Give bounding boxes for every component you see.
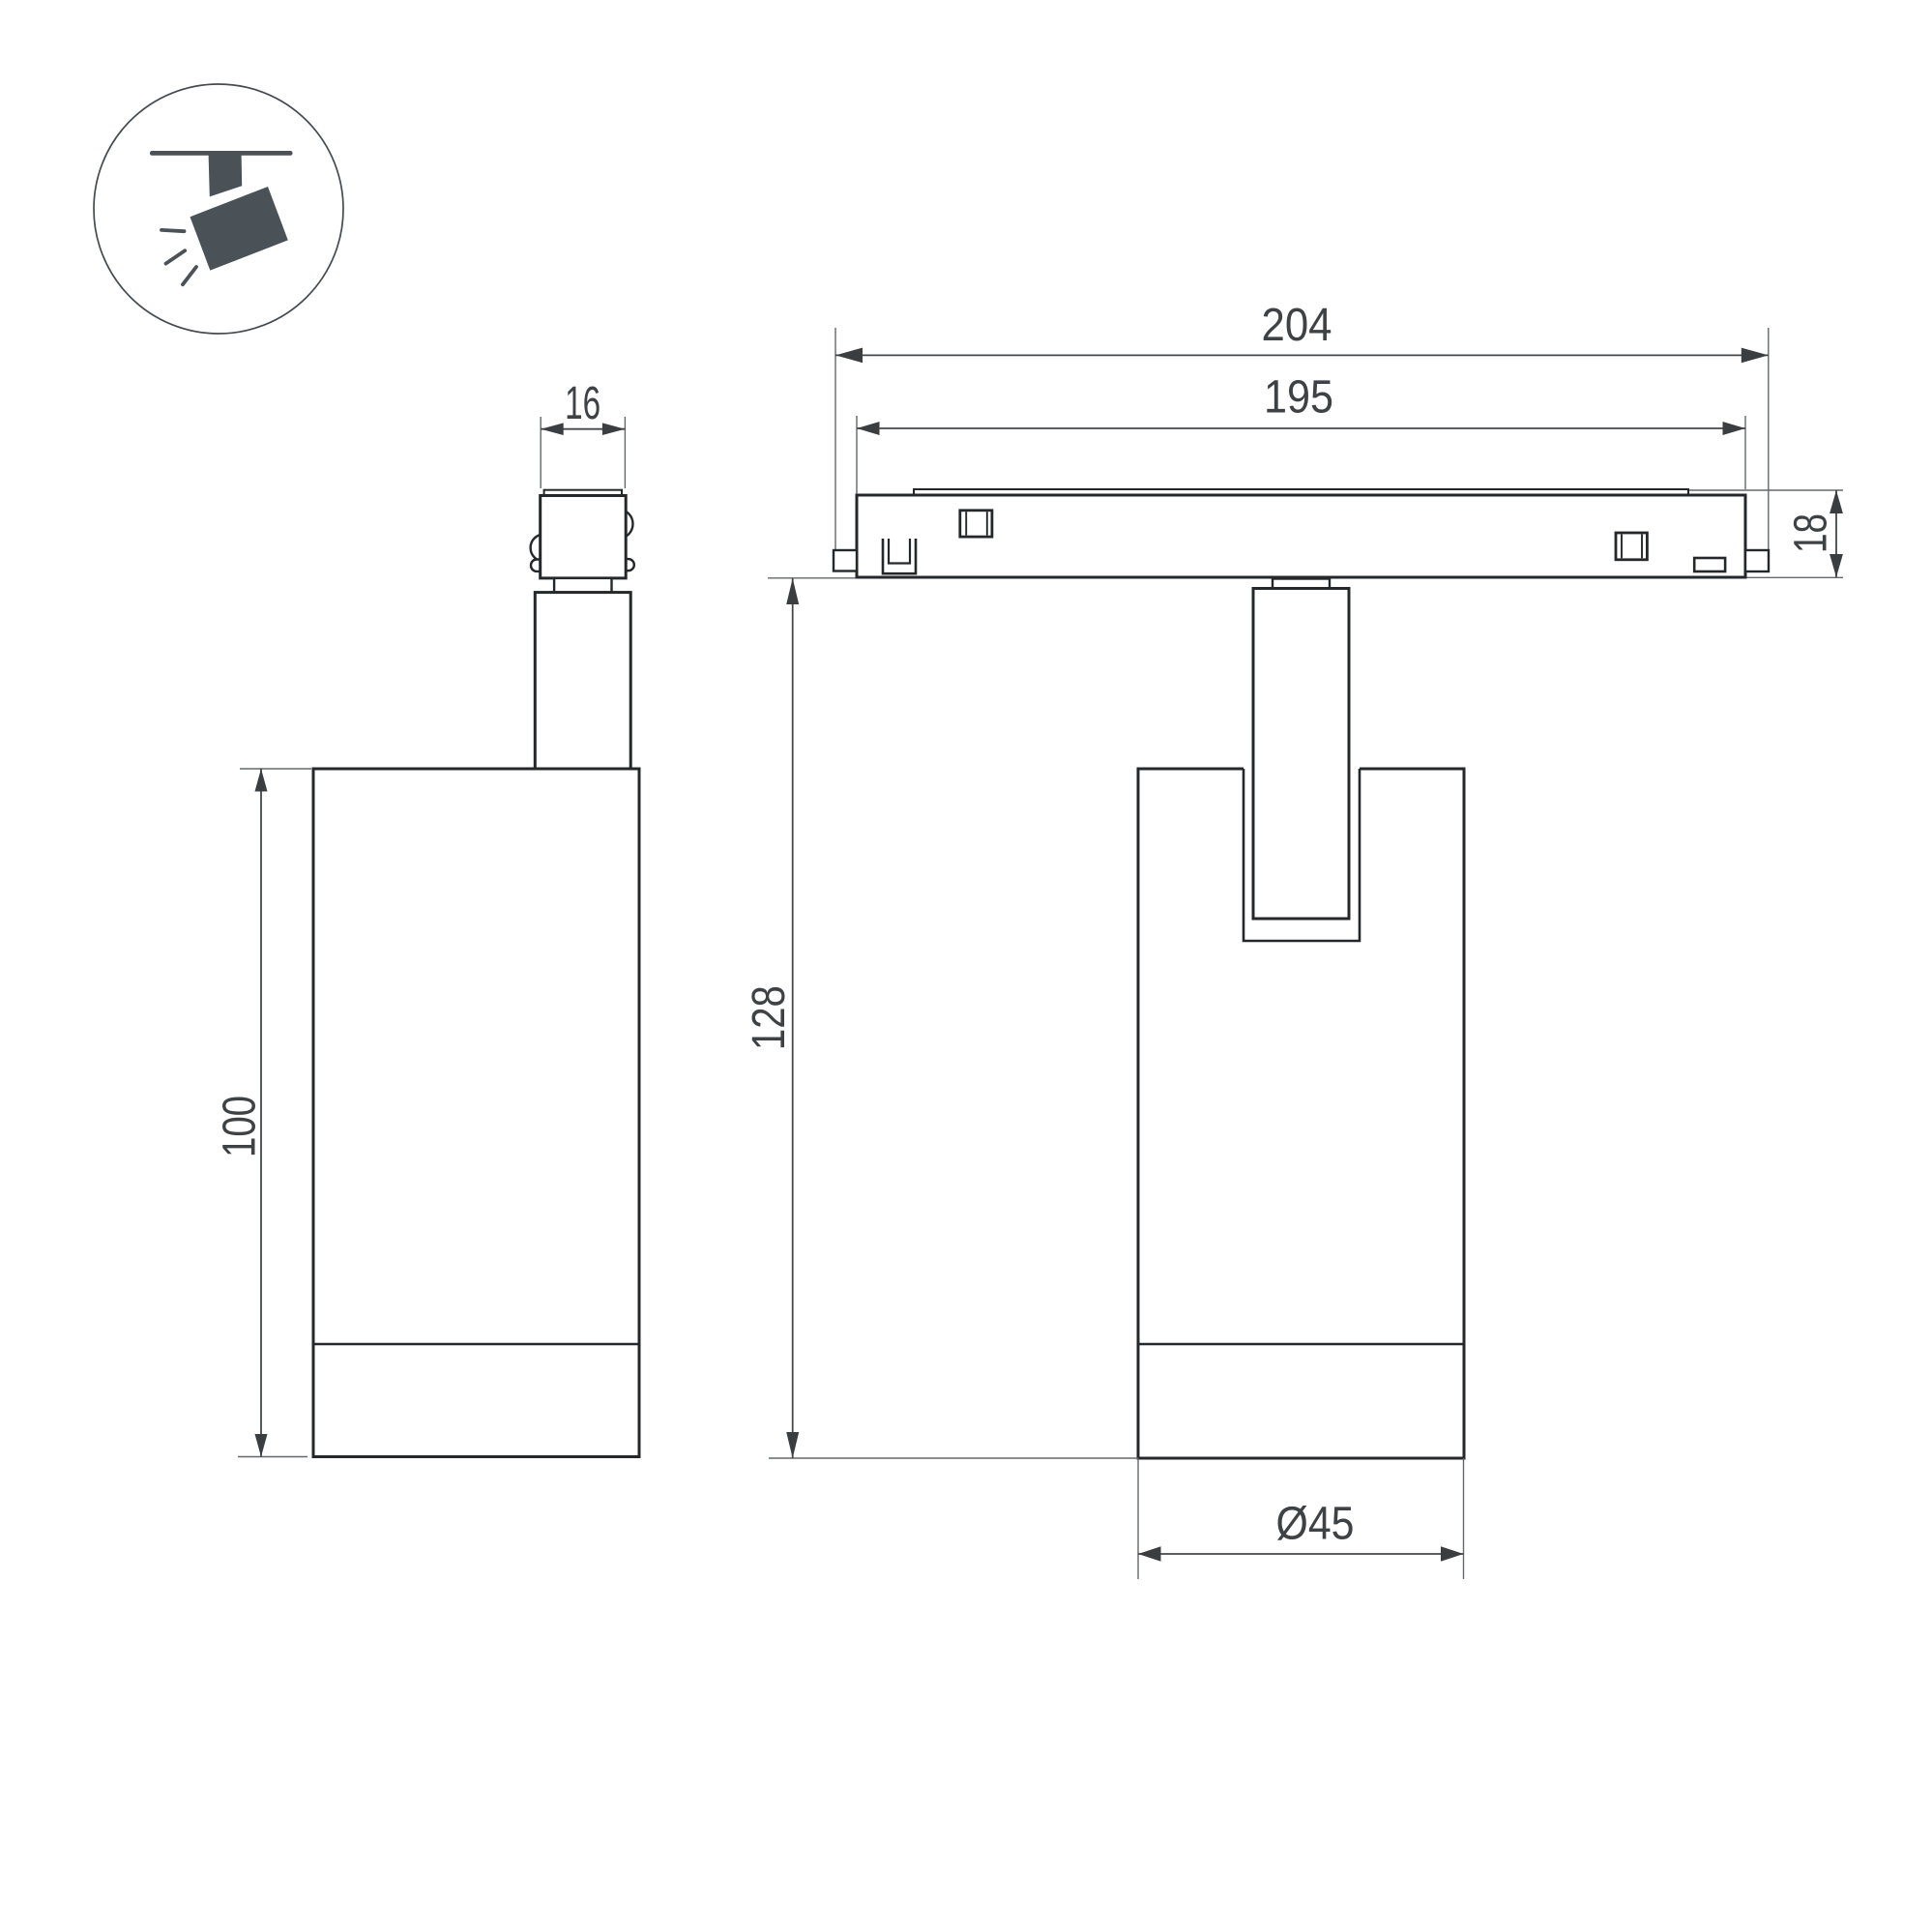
svg-text:18: 18 (1785, 513, 1836, 553)
svg-text:204: 204 (1262, 300, 1332, 351)
svg-text:100: 100 (214, 1096, 265, 1157)
svg-text:195: 195 (1264, 371, 1333, 423)
svg-text:Ø45: Ø45 (1276, 1499, 1355, 1550)
svg-text:128: 128 (744, 985, 795, 1050)
svg-text:16: 16 (565, 378, 600, 429)
